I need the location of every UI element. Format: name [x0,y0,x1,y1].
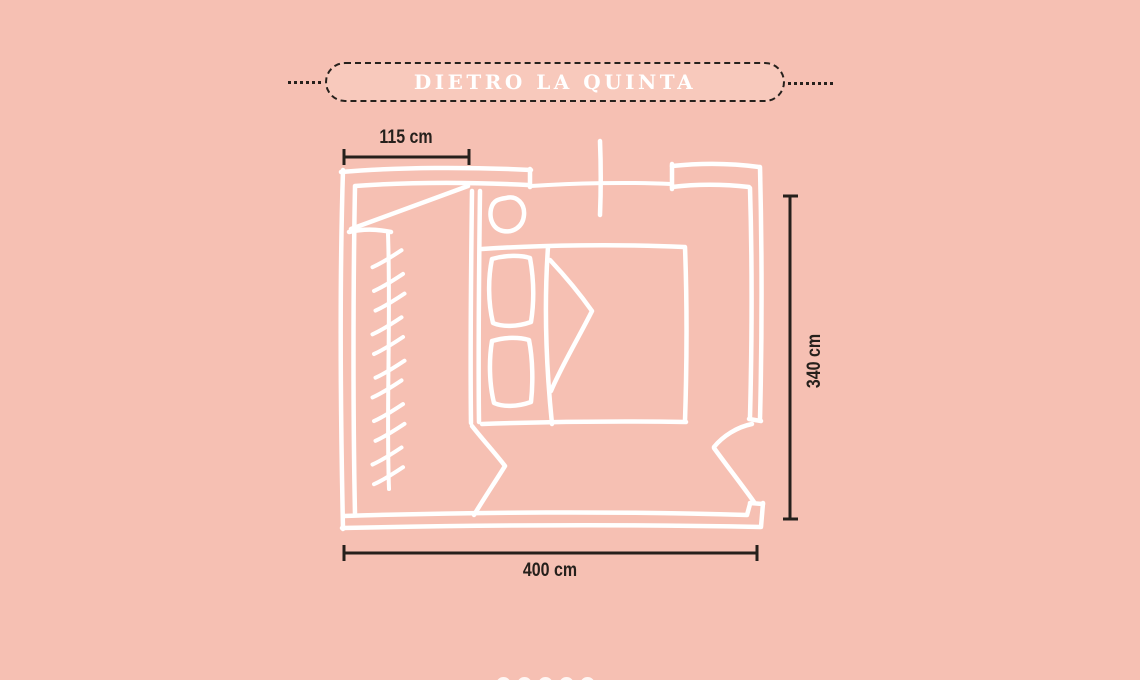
room-walls [341,164,763,529]
window-top [531,141,671,215]
wall-left-inner [354,187,356,514]
pillow-top [489,256,533,326]
wardrobe-hanger-rail [388,234,389,489]
door-leaf [714,448,754,502]
window-center-mark [600,141,601,215]
wall-top-left-outer [341,168,531,172]
door-jamb-top-cap [749,419,761,421]
wall-right-inner [750,188,752,417]
folded-blanket [550,260,592,391]
double-bed [482,245,687,424]
wall-top-left-inner [355,183,528,186]
wall-bottom-inner [344,504,750,516]
bed-top-edge [482,245,684,249]
wardrobe [349,186,468,489]
dimension-label-wardrobe-width: 115 cm [339,127,473,149]
wall-top-right-inner [672,185,749,187]
blanket-center-line [546,247,552,424]
wall-left-outer [341,170,343,529]
wardrobe-diagonal [351,186,468,229]
bed-right-edge [685,247,687,421]
door-bottom-right [714,424,754,502]
wall-top-right-outer [672,164,759,167]
partition-line-right [479,191,480,422]
wardrobe-shelf-line [349,230,391,232]
page: DIETRO LA QUINTA [0,0,1140,680]
pillow-bottom [490,338,532,406]
door-jamb-bottom-cap [750,503,763,504]
partition-line-left [471,191,472,423]
dimension-label-room-width: 400 cm [466,560,634,582]
stool [491,197,525,231]
partition-quinta [471,191,480,423]
dimension-label-room-depth: 340 cm [804,294,826,428]
bed-bottom-edge [482,422,686,424]
wall-right-outer [760,167,762,419]
curtain-mark [472,426,505,515]
door-swing-arc [714,424,752,447]
